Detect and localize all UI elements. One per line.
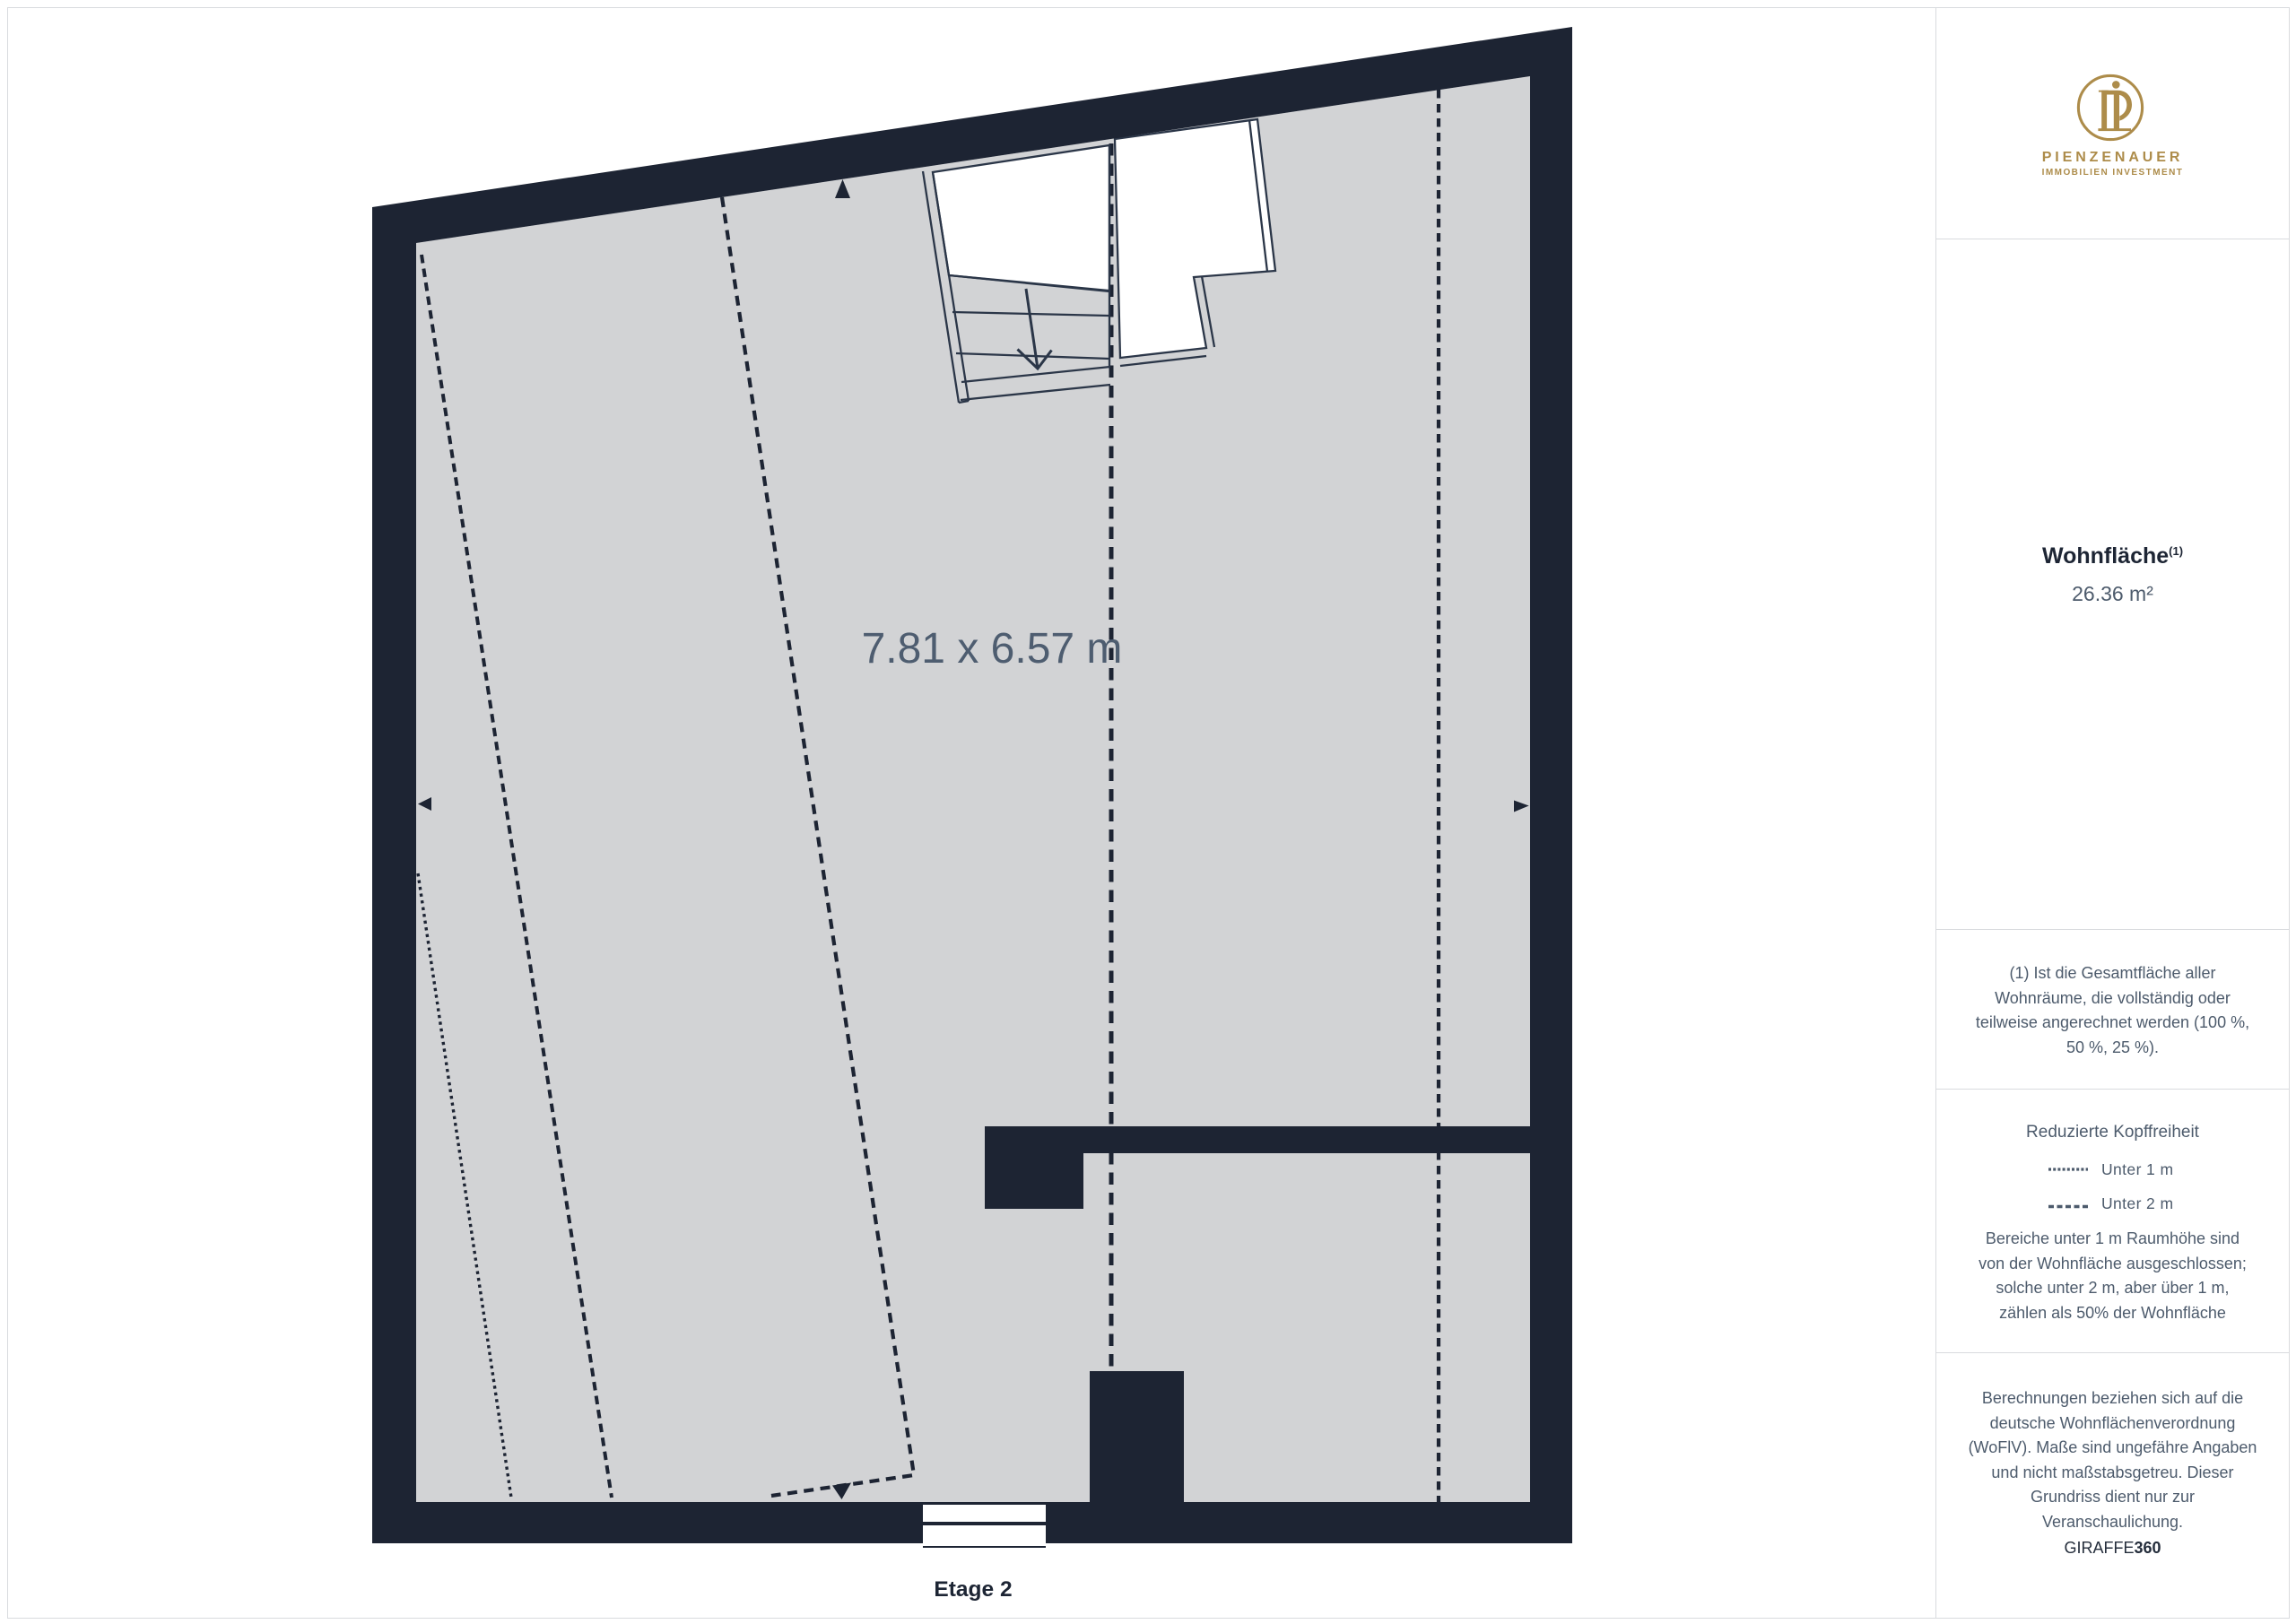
svg-text:7.81 x 6.57 m: 7.81 x 6.57 m bbox=[862, 625, 1123, 673]
svg-text:Etage 2: Etage 2 bbox=[934, 1577, 1012, 1602]
